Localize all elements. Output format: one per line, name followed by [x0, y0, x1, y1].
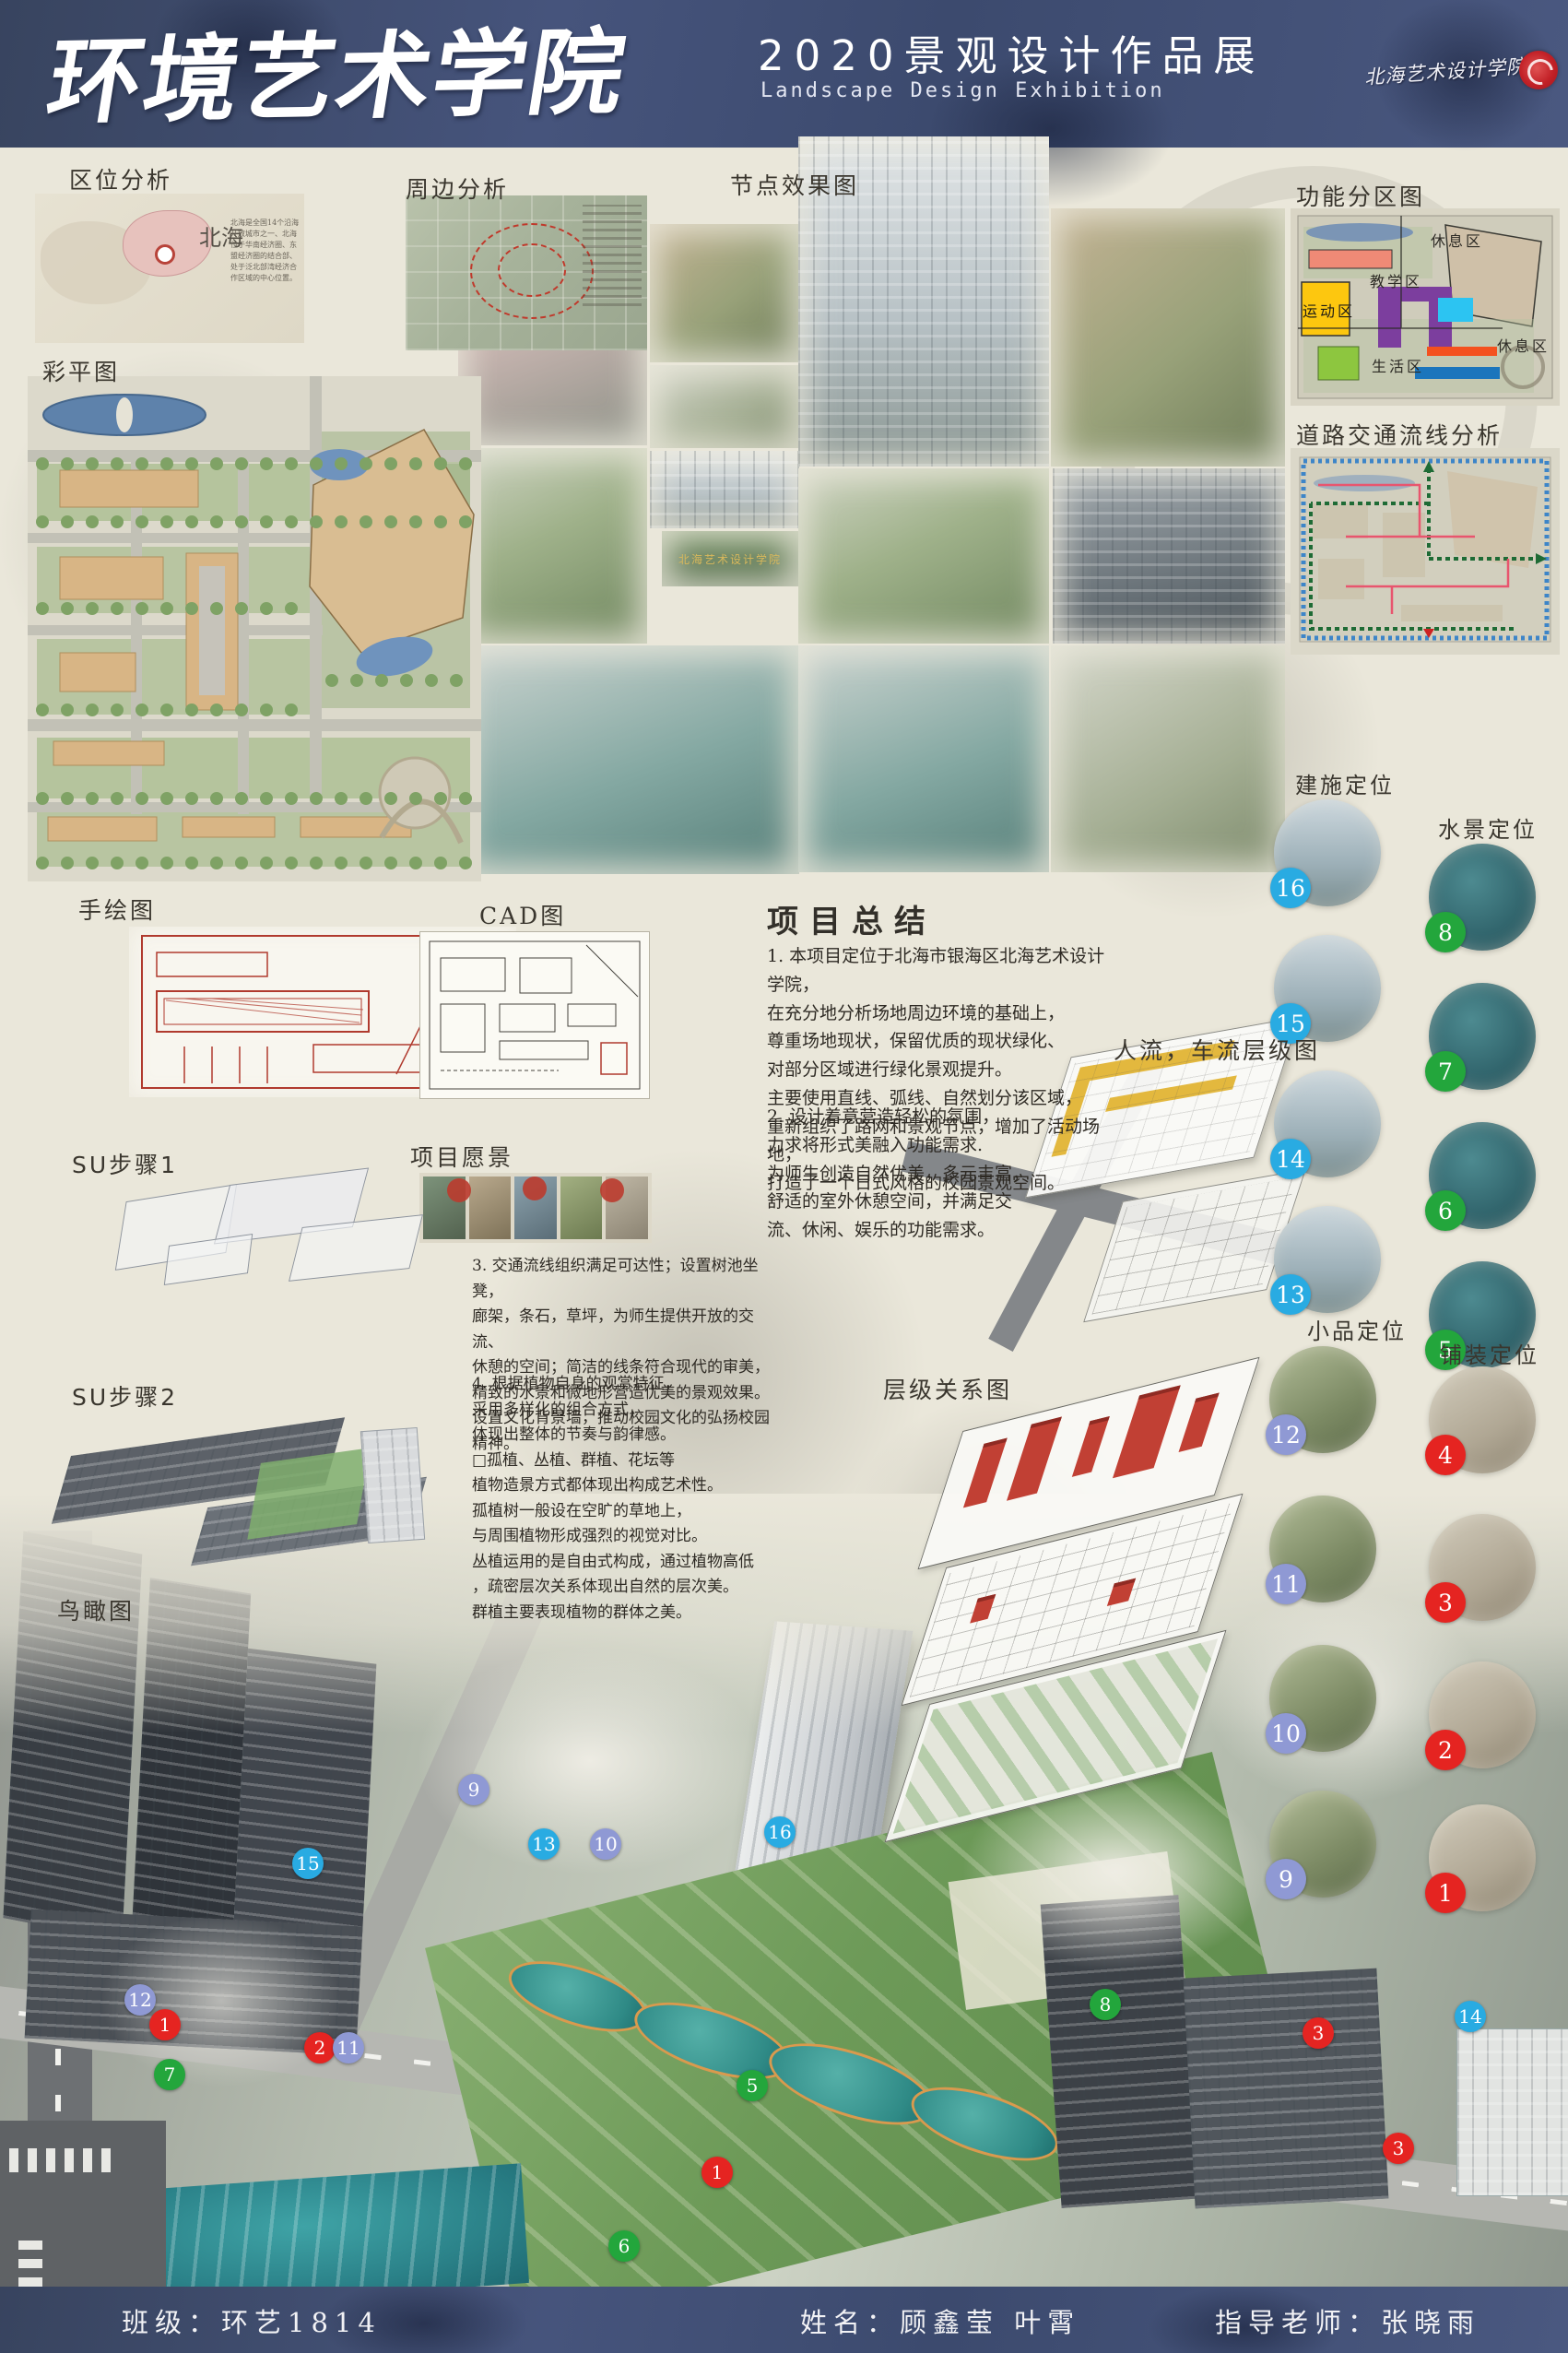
aerial-marker: 12 — [124, 1984, 156, 2016]
positioning-photo-circle: 11 — [1269, 1496, 1376, 1602]
circle-number-badge: 8 — [1425, 912, 1466, 952]
zone-rest-top: 休息区 — [1431, 229, 1483, 251]
positioning-photo-circle: 1 — [1429, 1804, 1536, 1911]
positioning-photo-circle: 7 — [1429, 983, 1536, 1090]
waterfront-pool — [153, 2163, 529, 2287]
traffic-map-graphic — [1291, 448, 1560, 655]
footer-class: 班级：环艺1814 — [122, 2301, 382, 2340]
label-hand-drawing: 手绘图 — [78, 893, 156, 926]
aerial-marker: 9 — [458, 1774, 489, 1805]
zone-sport: 运动区 — [1303, 299, 1355, 321]
su-step1-model — [111, 1166, 433, 1286]
summary-paragraph-2: 2. 设计着意营造轻松的氛围， 力求将形式美融入功能需求. 为师生创造自然优美，… — [767, 1103, 1110, 1245]
positioning-group-label: 水景定位 — [1438, 811, 1538, 844]
aerial-marker: 16 — [764, 1816, 796, 1848]
label-node-effects: 节点效果图 — [730, 168, 859, 201]
circle-number-badge: 12 — [1266, 1414, 1306, 1455]
aerial-marker: 5 — [737, 2070, 768, 2101]
circle-number-badge: 2 — [1425, 1730, 1466, 1770]
node-render-garden — [458, 448, 647, 644]
label-traffic-analysis: 道路交通流线分析 — [1296, 418, 1503, 451]
circle-number-badge: 4 — [1425, 1435, 1466, 1475]
zoning-map: 休息区 教学区 运动区 生活区 休息区 — [1291, 208, 1560, 406]
aerial-marker: 3 — [1303, 2017, 1334, 2049]
positioning-photo-circle: 15 — [1274, 935, 1381, 1042]
circle-number-badge: 13 — [1270, 1274, 1311, 1315]
academy-seal-icon — [1519, 51, 1558, 89]
aerial-marker: 10 — [590, 1828, 621, 1860]
aerial-marker: 8 — [1090, 1989, 1121, 2020]
school-calligraphy-title: 环境艺术学院 — [39, 0, 637, 142]
cad-drawing — [419, 931, 650, 1099]
campus-gate-render: 北海艺术设计学院 — [662, 531, 798, 586]
summary-paragraph-4: 4. 根据植物自身的观赏特征， 采用多样化的组合方式， 体现出整体的节奏与韵律感… — [472, 1372, 776, 1626]
label-flow-diagram: 人流，车流层级图 — [1114, 1033, 1320, 1066]
aerial-marker: 15 — [292, 1848, 324, 1879]
gate-sign-text: 北海艺术设计学院 — [678, 551, 782, 567]
positioning-photo-circle: 9 — [1269, 1791, 1376, 1898]
node-render-water-court — [798, 645, 1049, 872]
positioning-photo-circle: 12 — [1269, 1346, 1376, 1453]
positioning-photo-circle: 13 — [1274, 1206, 1381, 1313]
zone-teach: 教学区 — [1370, 269, 1422, 291]
aerial-marker: 2 — [304, 2032, 336, 2063]
summary-heading: 项目总结 — [767, 896, 937, 941]
node-render-water-plaza — [458, 645, 799, 874]
label-surrounding-analysis: 周边分析 — [406, 171, 509, 205]
location-note: 北海是全国14个沿海开放城市之一、北海位于华南经济圈、东盟经济圈的结合部、处于泛… — [230, 218, 301, 284]
positioning-photo-circle: 8 — [1429, 844, 1536, 951]
vision-stamp-icon — [600, 1178, 624, 1202]
aerial-marker: 11 — [333, 2032, 364, 2063]
node-render-dark-building — [1053, 468, 1285, 644]
positioning-photo-circle: 4 — [1429, 1366, 1536, 1473]
label-cad: CAD图 — [479, 898, 566, 931]
circle-number-badge: 3 — [1425, 1582, 1466, 1623]
label-color-plan: 彩平图 — [42, 354, 120, 387]
node-render-entry-plaza — [1051, 645, 1285, 872]
label-vision: 项目愿景 — [410, 1140, 513, 1173]
exhibition-title: 2020景观设计作品展 — [758, 22, 1266, 82]
zone-life: 生活区 — [1372, 354, 1424, 376]
traffic-flow-map — [1291, 448, 1560, 655]
circle-number-badge: 10 — [1266, 1713, 1306, 1754]
node-render-pergola-plaza — [1051, 208, 1285, 467]
location-map: 北海 北海是全国14个沿海开放城市之一、北海位于华南经济圈、东盟经济圈的结合部、… — [35, 194, 304, 343]
label-layer-diagram: 层级关系图 — [883, 1372, 1012, 1405]
street-intersection — [0, 2121, 166, 2287]
positioning-photo-circle: 6 — [1429, 1122, 1536, 1229]
zone-rest-bottom: 休息区 — [1497, 334, 1550, 356]
positioning-photo-circle: 10 — [1269, 1645, 1376, 1752]
site-radius-ring — [498, 243, 566, 297]
positioning-photo-circle: 16 — [1274, 799, 1381, 906]
vision-photo-strip — [419, 1173, 652, 1243]
circle-number-badge: 1 — [1425, 1873, 1466, 1913]
circle-number-badge: 11 — [1266, 1564, 1306, 1604]
positioning-photo-circle: 2 — [1429, 1661, 1536, 1768]
aerial-marker: 7 — [154, 2059, 185, 2090]
node-render-round-pavilion — [650, 365, 799, 448]
aerial-marker: 3 — [1383, 2133, 1414, 2164]
label-zoning-map: 功能分区图 — [1296, 179, 1425, 212]
label-location-analysis: 区位分析 — [69, 162, 172, 195]
positioning-photo-circle: 14 — [1274, 1070, 1381, 1177]
positioning-group-label: 建施定位 — [1295, 767, 1395, 799]
aerial-marker: 14 — [1455, 2001, 1486, 2032]
footer-teacher: 指导老师：张晓雨 — [1215, 2301, 1480, 2340]
poster-board: 环境艺术学院 2020景观设计作品展 Landscape Design Exhi… — [0, 0, 1568, 2353]
positioning-group-label: 小品定位 — [1307, 1313, 1407, 1345]
node-render-building — [650, 451, 799, 528]
positioning-group-label: 铺装定位 — [1440, 1337, 1539, 1369]
positioning-photo-circle: 3 — [1429, 1514, 1536, 1621]
vision-stamp-icon — [447, 1178, 471, 1202]
master-plan-graphic — [28, 376, 481, 881]
surrounding-map — [406, 195, 647, 350]
color-master-plan — [28, 376, 481, 881]
layer-relation-stack — [908, 1401, 1240, 1770]
exhibition-subtitle-en: Landscape Design Exhibition — [760, 79, 1165, 102]
su-step2-model — [60, 1401, 438, 1586]
aerial-marker: 1 — [701, 2157, 733, 2188]
node-render-pergola-aerial — [650, 224, 799, 362]
label-su-step1: SU步骤1 — [72, 1147, 178, 1180]
map-pin-icon — [155, 244, 175, 265]
label-su-step2: SU步骤2 — [72, 1379, 178, 1413]
aerial-marker: 6 — [608, 2230, 640, 2262]
aerial-marker: 13 — [528, 1828, 560, 1860]
circle-number-badge: 6 — [1425, 1190, 1466, 1231]
footer-names: 姓名：顾鑫莹 叶霄 — [800, 2301, 1080, 2340]
label-aerial-view: 鸟瞰图 — [57, 1593, 135, 1626]
vision-stamp-icon — [523, 1176, 547, 1200]
circle-number-badge: 14 — [1270, 1139, 1311, 1179]
aerial-marker: 1 — [149, 2009, 181, 2040]
circle-number-badge: 9 — [1266, 1859, 1306, 1899]
circle-number-badge: 7 — [1425, 1051, 1466, 1092]
node-render-planting — [798, 468, 1049, 644]
circle-number-badge: 16 — [1270, 868, 1311, 908]
